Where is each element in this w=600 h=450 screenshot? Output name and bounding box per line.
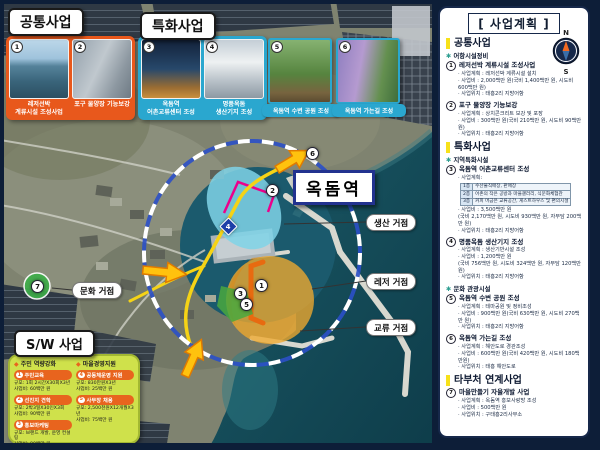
hub-label-leisure: 레저 거점 [366, 273, 416, 290]
poster-root: 공통사업 1 레저선박 계류시설 조성사업 2 포구 물양장 기능보강 특화사업… [0, 0, 600, 450]
floor-table: 1층수산물직매장, 판매장 2층어촌의 작은 공방과 마을갤러리, 식문화체험관… [460, 183, 571, 207]
number-badge: 5 [271, 41, 283, 53]
plan-item-7: 7마을만들기 자율개발 사업 · 사업계획 : 옥돔역 홍보사랑방 조성 · 사… [446, 388, 582, 418]
plan-sidebar: [ 사업계획 ] N S 공통사업 ✱ 어항시설정비 1레저선박 계류시설 조성… [432, 0, 600, 450]
special-project-3: 3 옥돔역 어촌교류센터 조성 [141, 39, 201, 117]
plan-bullet: 문화 관광시설 [453, 286, 490, 293]
sw-projects-panel: ◆ 주민 역량강화 1주민교육 규모: 1회 2시간X30회X3년 사업비: 6… [8, 354, 140, 444]
sw-detail: 사업비: 25백만 원 [76, 387, 134, 393]
special-projects-title: 특화사업 [140, 12, 216, 40]
plan-title: [ 사업계획 ] [468, 13, 560, 34]
map-marker-6: 6 [306, 147, 319, 160]
hub-label-exchange: 교류 거점 [366, 319, 416, 336]
plan-item-4: 4명품옥돔 생산기지 조성 · 사업계획 : 생산기반시설 조성 · 사업비 :… [446, 237, 582, 281]
star-bullet-icon: ✱ [446, 286, 451, 293]
plan-item-3: 3옥돔역 어촌교류센터 조성 · 사업계획: 1층수산물직매장, 판매장 2층어… [446, 165, 582, 234]
sw-column-capacity: ◆ 주민 역량강화 1주민교육 규모: 1회 2시간X30회X3년 사업비: 6… [14, 359, 72, 439]
map-marker-5: 5 [240, 298, 253, 311]
number-badge: 2 [74, 41, 86, 53]
common-project-1: 1 레저선박 계류시설 조성사업 [9, 39, 69, 117]
sw-projects-title: S/W 사업 [14, 330, 95, 357]
diamond-bullet-icon: ◆ [76, 361, 81, 368]
sw-chip-2: 2선진지 견학 [14, 395, 72, 405]
sw-chip-1: 1주민교육 [14, 370, 72, 380]
plan-section-special: 특화사업 [446, 142, 582, 153]
number-badge: 6 [339, 41, 351, 53]
station-label: 옥돔역 [293, 170, 375, 205]
plan-item-2: 2포구 물양장 기능보강 · 사업계획 : 상치콘크리트 보강 및 포장 · 사… [446, 101, 582, 138]
sw-detail: 규모: 2박3일X30인X3회 [14, 406, 72, 412]
number-badge: 4 [206, 41, 218, 53]
waterfront-park-photo: 5 [268, 38, 332, 104]
marina-photo: 1 [9, 39, 69, 99]
diamond-bullet-icon: ◆ [14, 361, 19, 368]
star-bullet-icon: ✱ [446, 53, 451, 60]
plan-bullet: 지역특화시설 [453, 157, 488, 164]
sw-detail: 규모: 2,500천원X12개월X3년 [76, 406, 134, 418]
station-road-photo: 6 [336, 38, 400, 104]
exchange-center-photo: 3 [141, 39, 201, 99]
hub-label-culture: 문화 거점 [72, 282, 122, 299]
sw-chip-4: 4공동체운영 지원 [76, 370, 134, 380]
photo-caption: 옥돔역 가는길 조성 [332, 104, 406, 117]
hub-label-production: 생산 거점 [366, 214, 416, 231]
sw-column-header: 마을경영지원 [83, 361, 116, 368]
sw-detail: 규모: 1회 2시간X30회X3년 [14, 381, 72, 387]
sw-detail: 규모: 브랜드 개발, 운영 컨설팅 [14, 431, 72, 443]
plan-item-5: 5옥돔역 수변 공원 조성 · 사업계획 : 테마공원 및 정비조성 · 사업비… [446, 294, 582, 331]
number-badge: 1 [11, 41, 23, 53]
photo-caption: 옥돔역 수변 공원 조성 [262, 104, 340, 117]
compass-icon: N S [549, 30, 583, 76]
plan-bullet: 어항시설정비 [453, 53, 488, 60]
number-badge: 3 [143, 41, 155, 53]
photo-caption: 어촌교류센터 조성 [147, 109, 195, 116]
sw-detail: 사업비: 75백만 원 [76, 418, 134, 424]
sw-detail: 사업비: 60백만 원 [14, 387, 72, 393]
common-projects-panel: 1 레저선박 계류시설 조성사업 2 포구 물양장 기능보강 [6, 36, 135, 120]
sw-detail: 사업비: 80백만 원 [14, 442, 72, 448]
photo-caption: 레저선박 [28, 101, 51, 108]
plan-section-linked: 타부처 연계사업 [446, 375, 582, 386]
sw-chip-3: 3홍보마케팅 [14, 420, 72, 430]
map-marker-2: 2 [266, 184, 279, 197]
sw-chip-5: 5사무장 채용 [76, 395, 134, 405]
plan-panel: [ 사업계획 ] N S 공통사업 ✱ 어항시설정비 1레저선박 계류시설 조성… [438, 6, 590, 438]
photo-caption: 계류시설 조성사업 [15, 109, 63, 116]
map-marker-7: 7 [31, 280, 44, 293]
sw-column-management: ◆ 마을경영지원 4공동체운영 지원 규모: 830만원X3년 사업비: 25백… [76, 359, 134, 439]
photo-caption: 포구 물양장 기능보강 [74, 101, 130, 108]
photo-caption: 생산기지 조성 [216, 109, 252, 116]
common-projects-title: 공통사업 [8, 8, 84, 36]
star-bullet-icon: ✱ [446, 157, 451, 164]
sw-column-header: 주민 역량강화 [21, 361, 56, 368]
slipway-photo: 2 [72, 39, 132, 99]
sw-detail: 사업비: 90백만 원 [14, 412, 72, 418]
common-project-2: 2 포구 물양장 기능보강 [72, 39, 132, 117]
production-base-photo: 4 [204, 39, 264, 99]
map-marker-1: 1 [255, 279, 268, 292]
special-projects-panel: 3 옥돔역 어촌교류센터 조성 4 명품옥돔 생산기지 조성 [138, 36, 267, 120]
photo-caption: 명품옥돔 [223, 101, 246, 108]
special-project-4: 4 명품옥돔 생산기지 조성 [204, 39, 264, 117]
photo-caption: 옥돔역 [162, 101, 179, 108]
plan-item-6: 6옥돔역 가는길 조성 · 사업계획 : 해안도로 경관조성 · 사업비 : 6… [446, 334, 582, 371]
